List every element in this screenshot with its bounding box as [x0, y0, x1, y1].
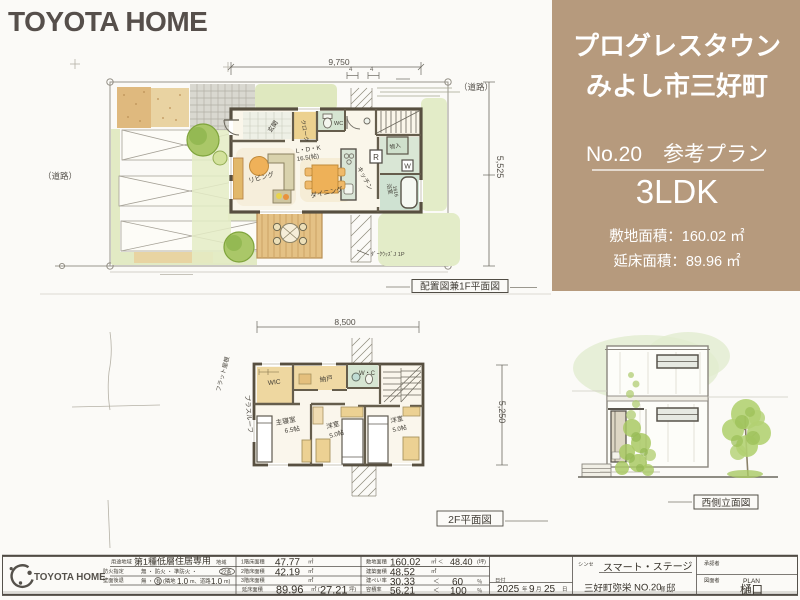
svg-text:敷地面積: 敷地面積: [366, 558, 388, 566]
svg-text:m): m): [224, 579, 230, 585]
svg-text:1.0: 1.0: [177, 577, 189, 586]
svg-text:（道路）: （道路）: [459, 82, 493, 92]
svg-text:㎡ (: ㎡ (: [311, 585, 320, 593]
svg-text:22条: 22条: [221, 569, 232, 576]
svg-text:5,525: 5,525: [495, 156, 505, 179]
svg-text:樋口: 樋口: [740, 583, 763, 597]
svg-text:三好町弥栄 NO.20: 三好町弥栄 NO.20: [584, 581, 662, 594]
svg-text:1.0: 1.0: [211, 577, 223, 586]
svg-text:％: ％: [477, 588, 482, 595]
svg-text:シンセ: シンセ: [578, 561, 594, 568]
svg-text:TOYOTA HOME: TOYOTA HOME: [34, 572, 106, 583]
svg-text:みよし市三好町: みよし市三好町: [586, 71, 768, 101]
svg-text:56.21: 56.21: [390, 586, 416, 597]
svg-text:邸: 邸: [666, 584, 676, 595]
svg-text:月: 月: [536, 586, 541, 593]
svg-text:プログレスタウン: プログレスタウン: [573, 31, 781, 61]
svg-text:27.21: 27.21: [320, 585, 348, 597]
svg-text:有: 有: [156, 578, 161, 585]
svg-text:スマート・ステージ: スマート・ステージ: [603, 561, 693, 574]
svg-text:5,250: 5,250: [497, 401, 507, 424]
svg-text:9: 9: [529, 584, 535, 595]
svg-text:48.40: 48.40: [450, 557, 473, 567]
svg-text:WC: WC: [334, 121, 343, 127]
svg-text:W: W: [404, 164, 411, 171]
svg-text:㎡ ＜: ㎡ ＜: [431, 558, 443, 566]
svg-text:承認者: 承認者: [704, 559, 720, 567]
svg-text:8,500: 8,500: [334, 317, 356, 327]
svg-text:防火指定: 防火指定: [103, 567, 124, 575]
svg-text:3階床面積: 3階床面積: [241, 576, 265, 584]
svg-text:㎡: ㎡: [308, 567, 314, 575]
svg-text:m、道路: m、道路: [190, 577, 211, 585]
svg-text:2F平面図: 2F平面図: [448, 514, 492, 526]
svg-text:TOYOTA HOME: TOYOTA HOME: [8, 6, 207, 37]
svg-text:壁面後退: 壁面後退: [103, 576, 124, 584]
svg-text:用途地域: 用途地域: [111, 558, 132, 566]
svg-text:図面者: 図面者: [704, 577, 720, 584]
svg-text:建築面積: 建築面積: [366, 567, 388, 575]
svg-text:(坪): (坪): [477, 558, 486, 566]
svg-text:25: 25: [544, 584, 556, 595]
svg-text:R: R: [373, 153, 379, 162]
svg-text:㎡: ㎡: [308, 576, 314, 584]
svg-text:No.20 参考プラン: No.20 参考プラン: [586, 143, 768, 166]
svg-text:日: 日: [562, 586, 567, 593]
svg-text:第1種低層住居専用: 第1種低層住居専用: [134, 555, 211, 567]
svg-text:9,750: 9,750: [328, 57, 350, 67]
svg-text:＜: ＜: [433, 587, 440, 594]
svg-text:WIC: WIC: [267, 379, 281, 387]
svg-text:3LDK: 3LDK: [636, 173, 719, 210]
svg-text:敷地面積：160.02 ㎡: 敷地面積：160.02 ㎡: [609, 228, 745, 245]
svg-text:42.19: 42.19: [275, 567, 301, 578]
svg-text:無 ・: 無 ・: [141, 577, 153, 585]
svg-text:延床面積: 延床面積: [242, 585, 264, 593]
svg-text:89.96: 89.96: [276, 584, 304, 596]
svg-text:2025: 2025: [497, 584, 520, 595]
svg-text:㎡: ㎡: [308, 558, 314, 566]
svg-text:1階床面積: 1階床面積: [241, 558, 265, 566]
svg-text:％: ％: [477, 579, 482, 586]
svg-text:＜: ＜: [433, 578, 440, 585]
svg-text:年: 年: [522, 585, 528, 593]
svg-text:地域: 地域: [216, 558, 226, 566]
svg-text:坪): 坪): [349, 585, 356, 593]
svg-text:2階床面積: 2階床面積: [241, 567, 265, 575]
svg-text:(隣地: (隣地: [163, 577, 176, 585]
svg-text:日付: 日付: [495, 576, 505, 584]
svg-text:100: 100: [450, 586, 467, 597]
svg-text:ﾀﾞｰｸｳｯｽﾞJ 1P: ﾀﾞｰｸｳｯｽﾞJ 1P: [371, 251, 405, 258]
svg-text:西側立面図: 西側立面図: [702, 496, 751, 509]
svg-text:建ぺい率: 建ぺい率: [366, 576, 387, 584]
svg-text:配置図兼1F平面図: 配置図兼1F平面図: [420, 280, 500, 293]
svg-text:無 ・ 防火 ・ 準防火 ・: 無 ・ 防火 ・ 準防火 ・: [141, 568, 197, 576]
svg-text:容積率: 容積率: [366, 585, 382, 593]
svg-text:（道路）: （道路）: [43, 171, 77, 181]
svg-text:延床面積：89.96 ㎡: 延床面積：89.96 ㎡: [613, 253, 741, 270]
svg-text:W・C: W・C: [359, 371, 376, 377]
svg-text:㎡: ㎡: [431, 567, 437, 575]
